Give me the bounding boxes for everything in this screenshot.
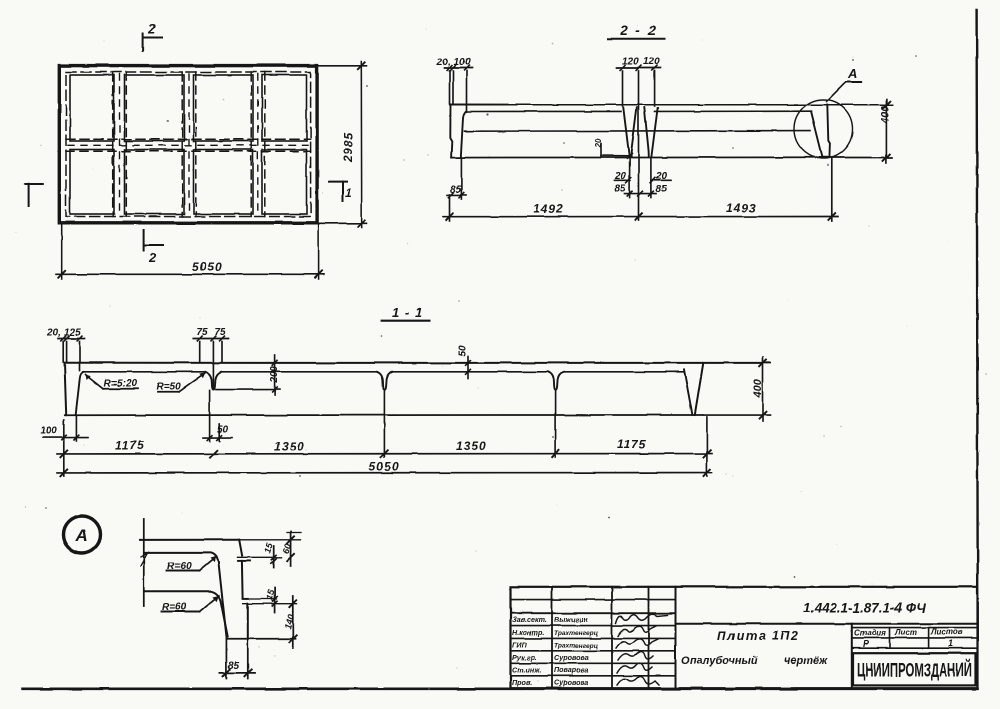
svg-text:85: 85 — [615, 184, 627, 195]
svg-text:120: 120 — [643, 57, 660, 68]
svg-text:Выжигин: Выжигин — [554, 615, 588, 624]
svg-text:1175: 1175 — [617, 437, 647, 451]
svg-text:20,: 20, — [436, 57, 451, 68]
svg-text:120: 120 — [622, 57, 639, 68]
svg-text:400: 400 — [880, 105, 892, 125]
svg-text:2985: 2985 — [342, 132, 356, 164]
svg-text:Трахтенгерц: Трахтенгерц — [554, 642, 598, 649]
svg-text:75: 75 — [215, 327, 227, 338]
svg-text:125: 125 — [64, 328, 81, 339]
svg-text:1 - 1: 1 - 1 — [392, 305, 423, 320]
svg-text:Поварова: Поварова — [554, 665, 589, 674]
svg-text:Лист: Лист — [894, 628, 917, 637]
svg-text:50: 50 — [217, 425, 229, 436]
svg-text:R=60: R=60 — [167, 561, 192, 572]
svg-text:Пров.: Пров. — [512, 678, 532, 687]
svg-text:Листов: Листов — [930, 628, 963, 637]
svg-text:20,: 20, — [46, 328, 61, 339]
svg-text:140: 140 — [283, 613, 297, 630]
svg-text:ГИП: ГИП — [512, 640, 528, 649]
svg-text:Суровова: Суровова — [554, 653, 589, 662]
svg-text:Плита 1П2: Плита 1П2 — [717, 629, 799, 643]
svg-text:2: 2 — [148, 250, 157, 265]
svg-text:R=60: R=60 — [162, 602, 187, 613]
svg-text:85: 85 — [450, 185, 462, 196]
svg-text:Р: Р — [863, 639, 870, 649]
svg-text:1.442.1-1.87.1-4 ФЧ: 1.442.1-1.87.1-4 ФЧ — [803, 601, 927, 616]
svg-text:200: 200 — [269, 366, 280, 384]
svg-text:чертёж: чертёж — [784, 655, 828, 667]
svg-text:Рук.гр.: Рук.гр. — [512, 653, 537, 662]
svg-text:100: 100 — [454, 57, 471, 68]
svg-text:1493: 1493 — [726, 201, 757, 215]
svg-text:R=5:20: R=5:20 — [104, 379, 138, 390]
svg-text:Суровова: Суровова — [554, 678, 589, 687]
svg-text:1: 1 — [345, 186, 352, 200]
svg-text:20: 20 — [594, 138, 603, 148]
svg-text:1350: 1350 — [274, 440, 305, 454]
svg-text:1: 1 — [948, 639, 953, 649]
svg-text:5050: 5050 — [369, 460, 400, 474]
svg-text:100: 100 — [40, 426, 57, 437]
svg-text:Зав.сект.: Зав.сект. — [512, 615, 547, 624]
svg-text:85: 85 — [656, 184, 668, 195]
svg-text:Н.контр.: Н.контр. — [512, 628, 544, 637]
svg-text:R=50: R=50 — [156, 382, 181, 393]
svg-text:20: 20 — [655, 171, 668, 182]
svg-text:Стадия: Стадия — [854, 629, 886, 638]
svg-text:2 - 2: 2 - 2 — [619, 22, 658, 38]
svg-text:Ст.инж.: Ст.инж. — [512, 665, 542, 674]
svg-text:Опалубочный: Опалубочный — [681, 655, 758, 667]
svg-text:ЦНИИПРОМЗДАНИЙ: ЦНИИПРОМЗДАНИЙ — [857, 660, 972, 682]
svg-text:1492: 1492 — [533, 202, 564, 216]
svg-text:50: 50 — [458, 345, 469, 357]
svg-text:A: A — [847, 66, 857, 81]
svg-text:A: A — [75, 526, 88, 545]
svg-text:Трахтенгерц: Трахтенгерц — [554, 630, 598, 637]
svg-text:2: 2 — [147, 22, 156, 37]
svg-text:85: 85 — [228, 661, 240, 672]
svg-text:75: 75 — [197, 327, 209, 338]
svg-text:20: 20 — [614, 171, 627, 182]
svg-text:5050: 5050 — [192, 260, 223, 274]
svg-text:1350: 1350 — [456, 439, 487, 453]
svg-text:1175: 1175 — [115, 439, 145, 453]
